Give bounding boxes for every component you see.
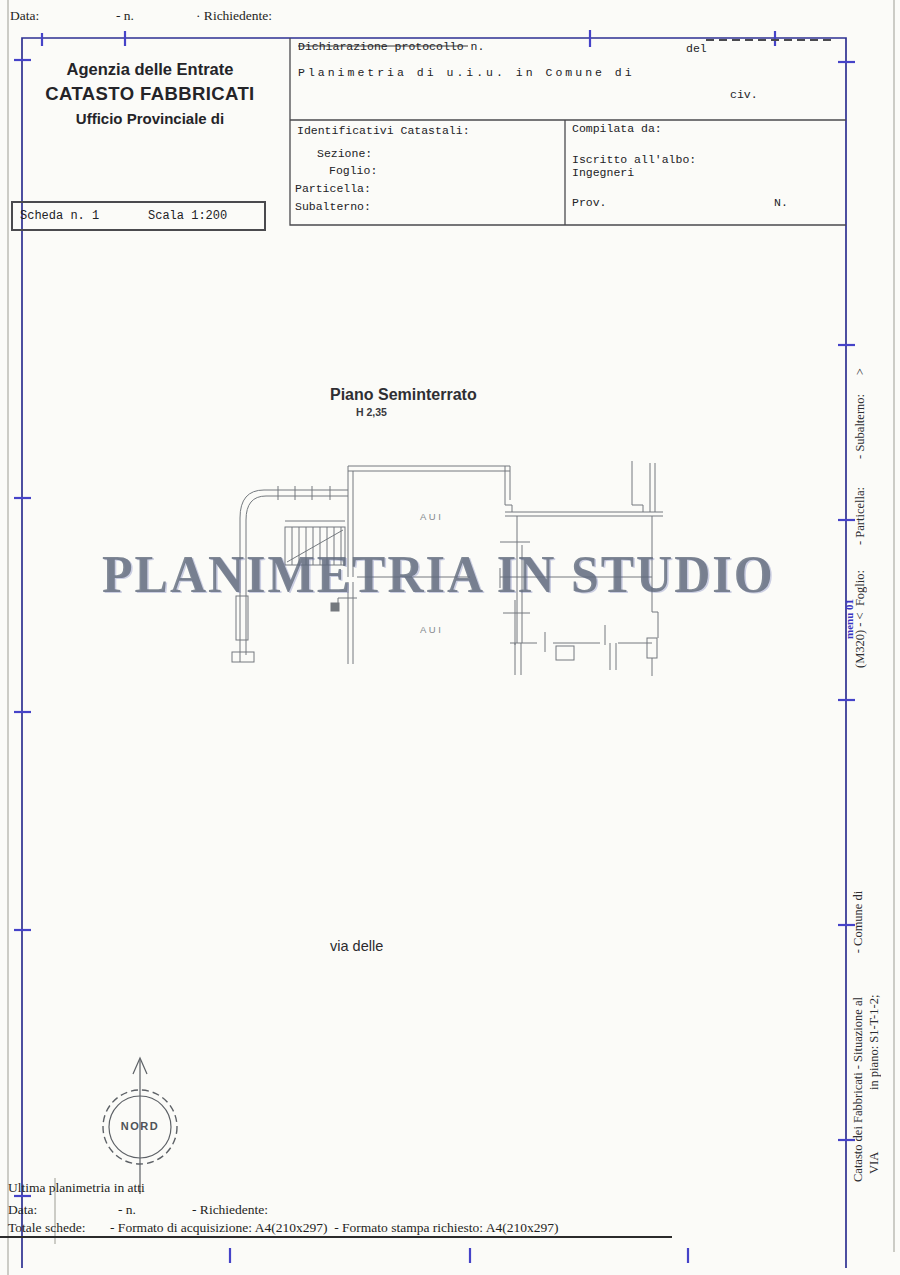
footer-richiedente-label: - Richiedente: bbox=[192, 1202, 268, 1218]
nord-label: NORD bbox=[118, 1120, 162, 1132]
foglio-label: Foglio: bbox=[329, 164, 377, 177]
room-label-aui-1: AUI bbox=[420, 511, 443, 522]
compilata-da-label: Compilata da: bbox=[572, 122, 662, 135]
sidebar-blue-note: menu 01 bbox=[843, 577, 855, 639]
footer-data-label: Data: bbox=[8, 1202, 37, 1218]
subalterno-label: Subalterno: bbox=[295, 200, 371, 213]
civ-label: civ. bbox=[730, 88, 758, 101]
top-n-label: - n. bbox=[116, 8, 134, 24]
del-label: del bbox=[686, 42, 707, 55]
sidebar-foglio-particella-subalterno: (M320) - < Foglio: - Particella: - Subal… bbox=[853, 300, 868, 668]
prov-label: Prov. bbox=[572, 196, 607, 209]
studio-watermark: PLANIMETRIA IN STUDIO bbox=[102, 543, 775, 606]
top-richiedente-label: · Richiedente: bbox=[196, 8, 272, 24]
ultima-planimetria-label: Ultima planimetria in atti bbox=[8, 1180, 145, 1196]
planimetria-uiu-label: Planimetria di u.i.u. in Comune di bbox=[298, 66, 635, 79]
scanned-cadastral-document: { "page": { "frame_color": "#2e3192", "t… bbox=[0, 0, 900, 1275]
footer-n-label: - n. bbox=[118, 1202, 136, 1218]
frame-and-plan-graphics bbox=[0, 0, 900, 1275]
iscritto-albo-label: Iscritto all'albo: bbox=[572, 153, 696, 166]
floor-height-label: H 2,35 bbox=[356, 406, 387, 418]
street-label: via delle bbox=[330, 938, 383, 954]
totale-schede-label: Totale schede: bbox=[8, 1220, 85, 1236]
ingegneri-label: Ingegneri bbox=[572, 166, 634, 179]
floor-title: Piano Seminterrato bbox=[330, 386, 477, 404]
agency-name: Agenzia delle Entrate bbox=[35, 60, 265, 79]
formato-label: - Formato di acquisizione: A4(210x297) -… bbox=[110, 1220, 558, 1236]
n-label: N. bbox=[774, 196, 788, 209]
scala-label: Scala 1:200 bbox=[148, 209, 227, 223]
ufficio-provinciale-label: Ufficio Provinciale di bbox=[35, 110, 265, 127]
scheda-number-label: Scheda n. 1 bbox=[20, 209, 99, 223]
sidebar-via-piano: VIA in piano: S1-T-1-2; bbox=[867, 884, 882, 1174]
room-label-aui-2: AUI bbox=[420, 624, 443, 635]
catasto-fabbricati-title: CATASTO FABBRICATI bbox=[35, 83, 265, 105]
sidebar-catasto-fabbricati: Catasto dei Fabbricati - Situazione al -… bbox=[851, 782, 866, 1182]
agency-header: Agenzia delle Entrate CATASTO FABBRICATI… bbox=[35, 60, 265, 127]
top-data-label: Data: bbox=[10, 8, 39, 24]
identificativi-catastali-title: Identificativi Catastali: bbox=[297, 124, 470, 137]
sezione-label: Sezione: bbox=[317, 147, 372, 160]
dichiarazione-protocollo-label: Dichiarazione protocollo n. bbox=[298, 40, 484, 53]
particella-label: Particella: bbox=[295, 182, 371, 195]
